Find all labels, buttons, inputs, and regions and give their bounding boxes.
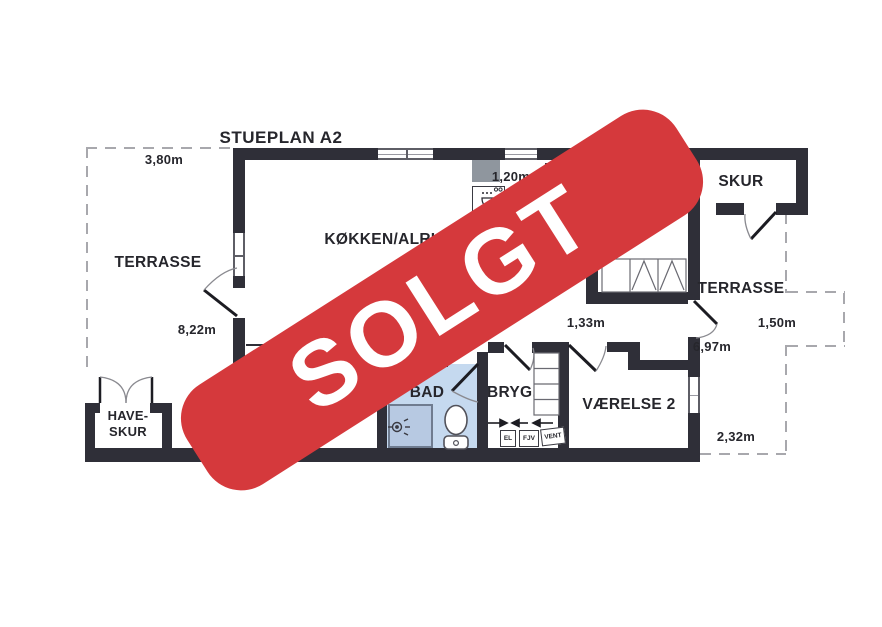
bedroom2-door [569,345,606,371]
terrace-door [694,301,717,338]
flow-arrows-icon [488,420,553,427]
bath-door [452,364,478,402]
shower-head-icon [388,419,410,435]
shed-door [745,212,776,239]
wardrobe-icon [602,259,686,292]
garden-shed-doors [100,377,152,403]
toilet-icon [444,406,468,450]
shelves-icon [534,353,559,415]
floorplan-image: EL FJV VENT [0,0,882,627]
entry-door [204,268,237,316]
utility-door [505,345,534,370]
